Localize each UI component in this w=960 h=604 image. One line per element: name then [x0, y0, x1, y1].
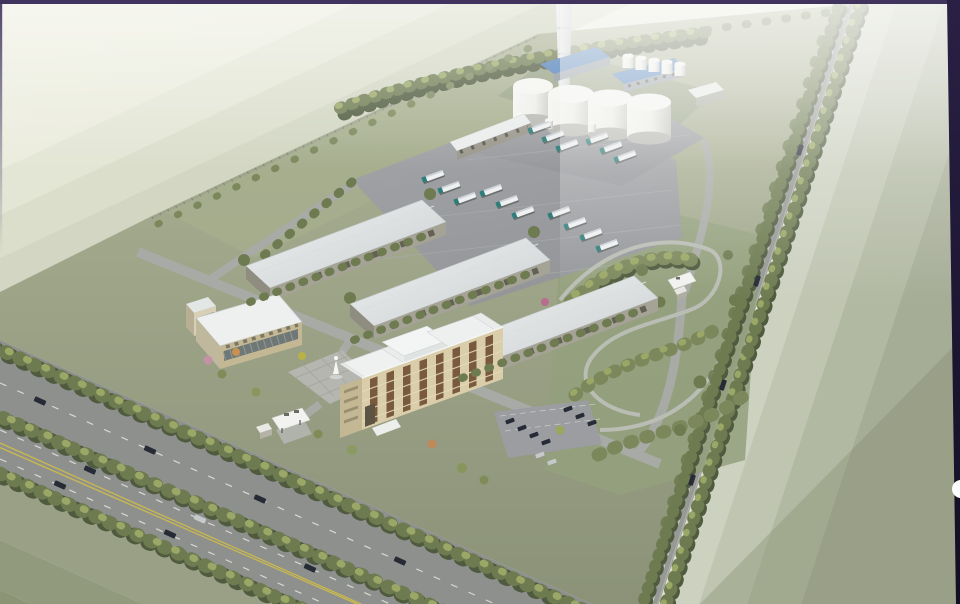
plant-campus-scene [0, 0, 960, 604]
top-border [0, 0, 960, 4]
left-border [0, 4, 2, 254]
aerial-rendering [0, 0, 960, 604]
